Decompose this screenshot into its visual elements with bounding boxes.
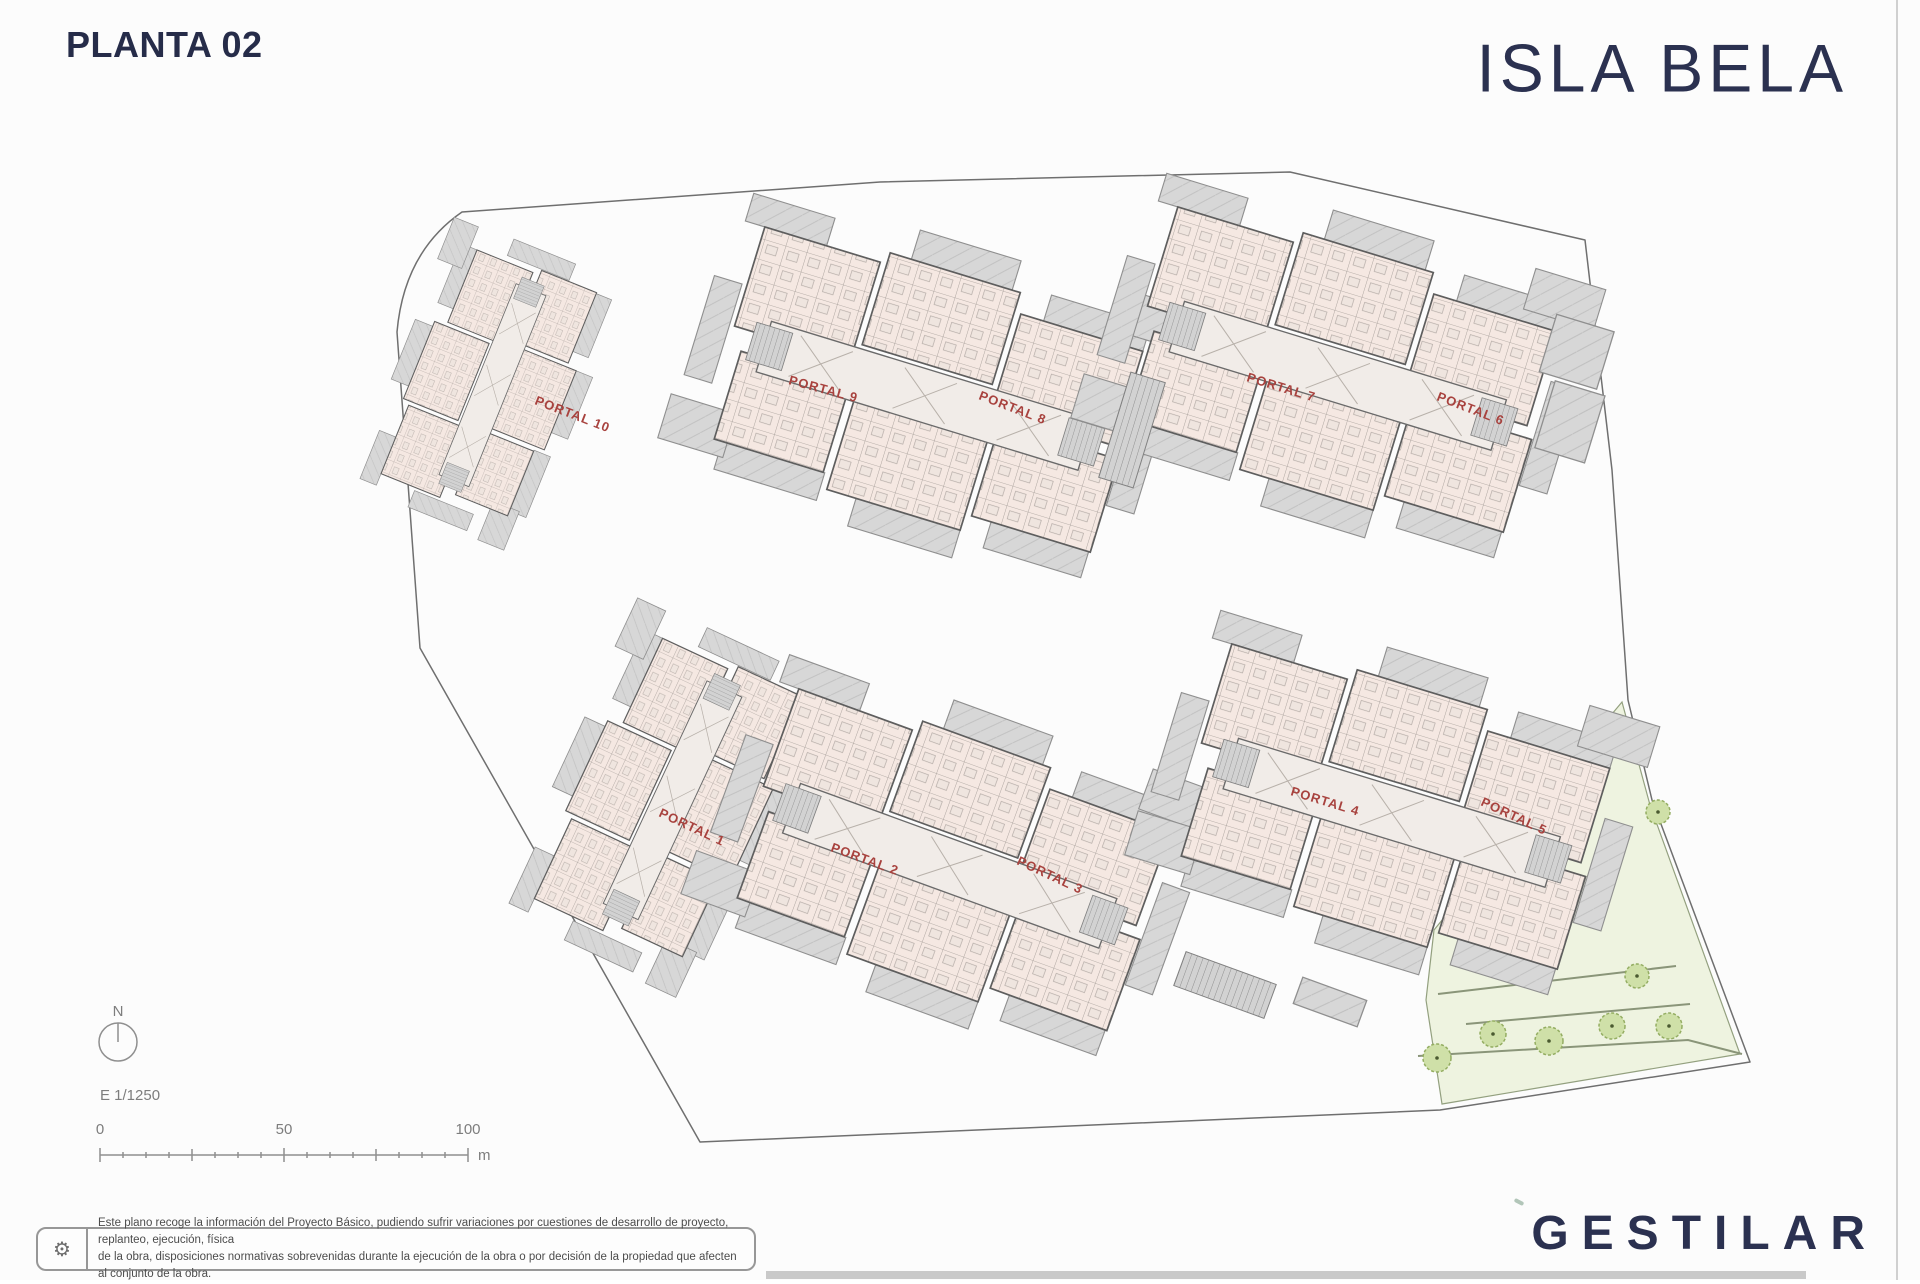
scale-ratio: E 1/1250 [100,1087,160,1104]
north-label: N [113,1003,124,1020]
gestilar-logo: GESTILAR [1531,1206,1878,1261]
tree-icon [1656,1013,1682,1039]
building-cluster-portal-10 [346,215,630,556]
disclaimer-line-1: Este plano recoge la información del Pro… [98,1215,744,1250]
scale-indicator: E 1/1250 0 50 100 m [96,1087,491,1164]
gear-flower-icon: ⚙ [38,1229,88,1269]
tree-icon [1480,1021,1506,1047]
tree-icon [1646,800,1670,824]
tree-icon [1625,964,1649,988]
isla-bela-logo: ISLA BELA [1476,29,1848,107]
north-compass: N [99,1003,137,1061]
page-title: PLANTA 02 [66,24,263,66]
bottom-gray-bar [766,1271,1806,1279]
site-plan-svg: PORTAL 1 PORTAL 2 PORTAL 3 PORTAL 4 PORT… [0,0,1920,1280]
scale-tick-50: 50 [276,1121,293,1138]
page-edge-line [1896,0,1898,1280]
scale-tick-0: 0 [96,1121,104,1138]
disclaimer-box: ⚙ Este plano recoge la información del P… [36,1227,756,1271]
tree-icon [1599,1013,1625,1039]
scale-tick-100: 100 [455,1121,480,1138]
disclaimer-line-2: de la obra, disposiciones normativas sob… [98,1249,744,1284]
scale-unit: m [478,1147,491,1164]
tree-icon [1535,1027,1563,1055]
disclaimer-text: Este plano recoge la información del Pro… [88,1229,754,1269]
building-cluster-portals-7-6 [1062,151,1609,585]
tree-icon [1423,1044,1451,1072]
